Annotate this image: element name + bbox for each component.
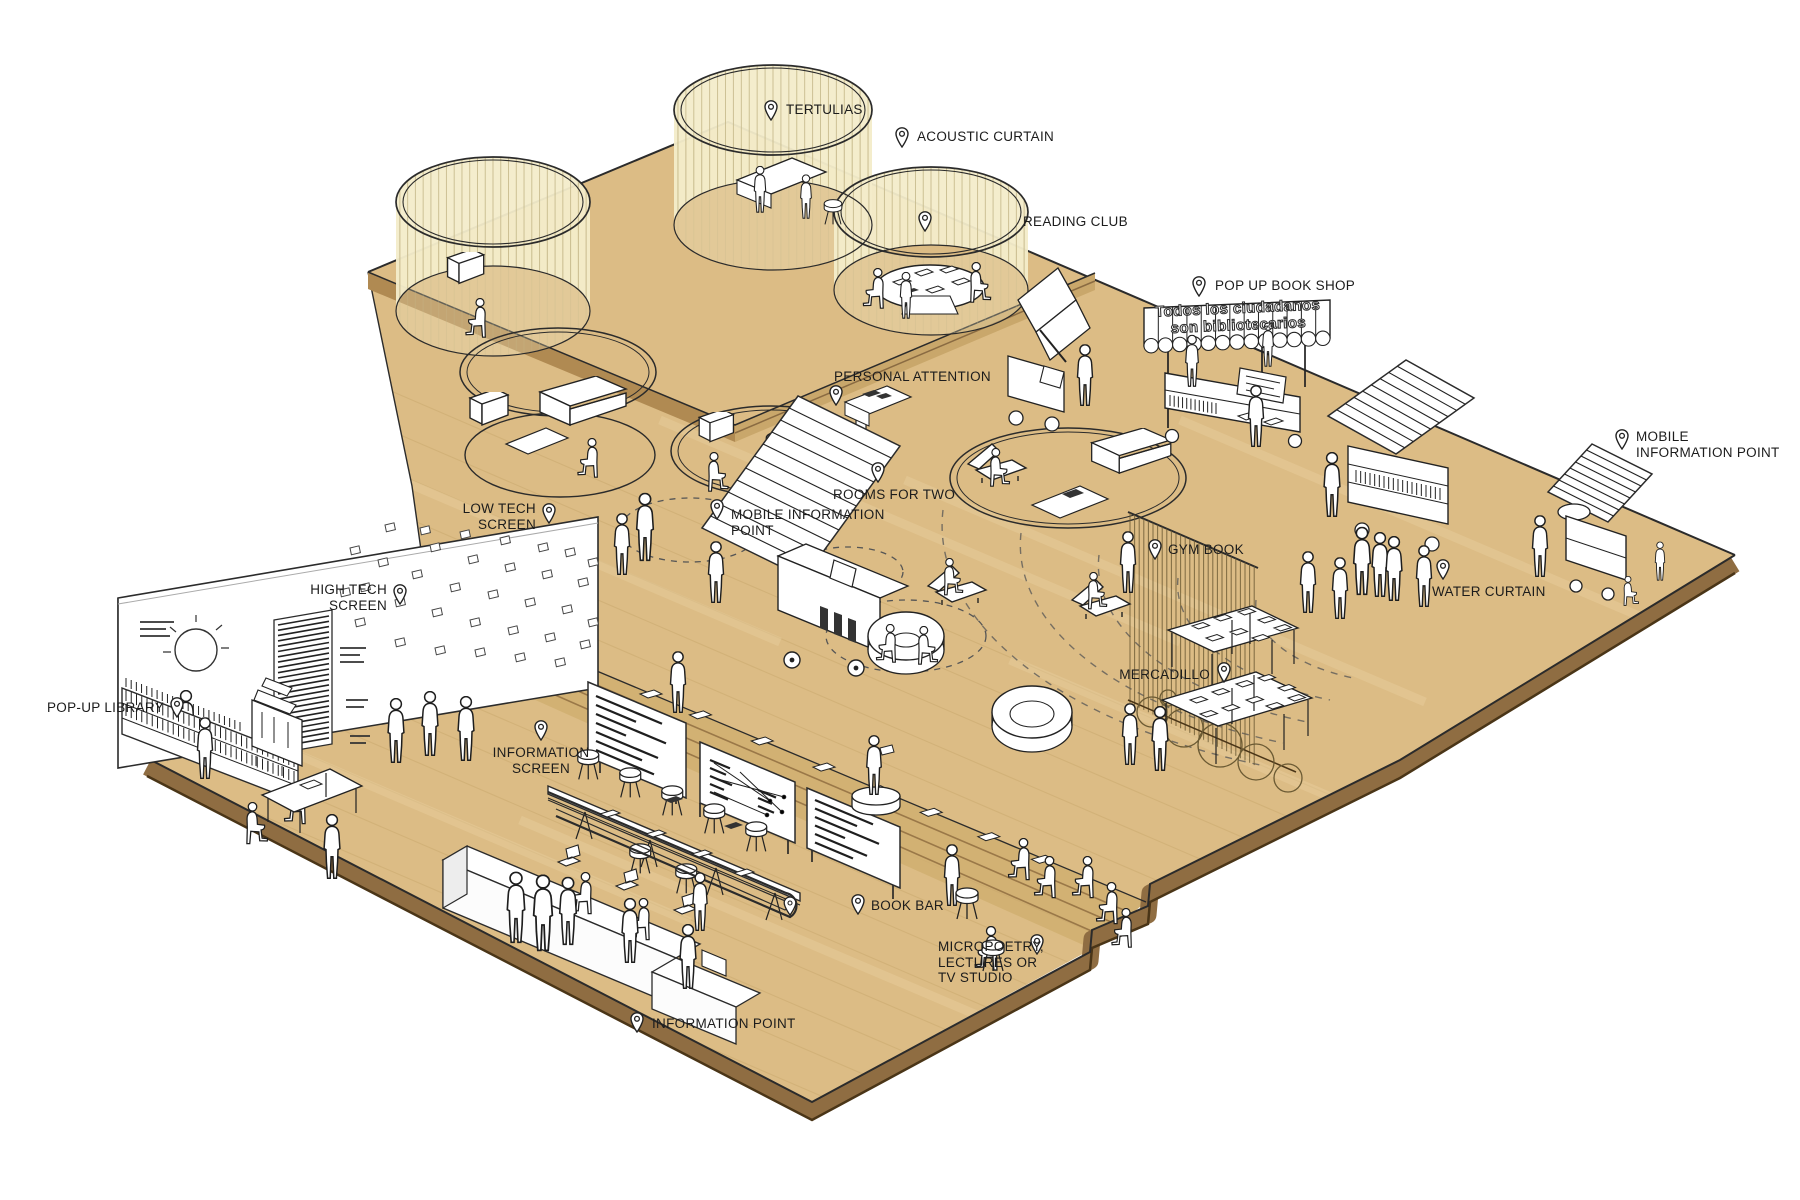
axonometric-library-diagram: TERTULIAS ACOUSTIC CURTAIN READING CLUB …	[0, 0, 1800, 1200]
illustration	[0, 0, 1800, 1200]
